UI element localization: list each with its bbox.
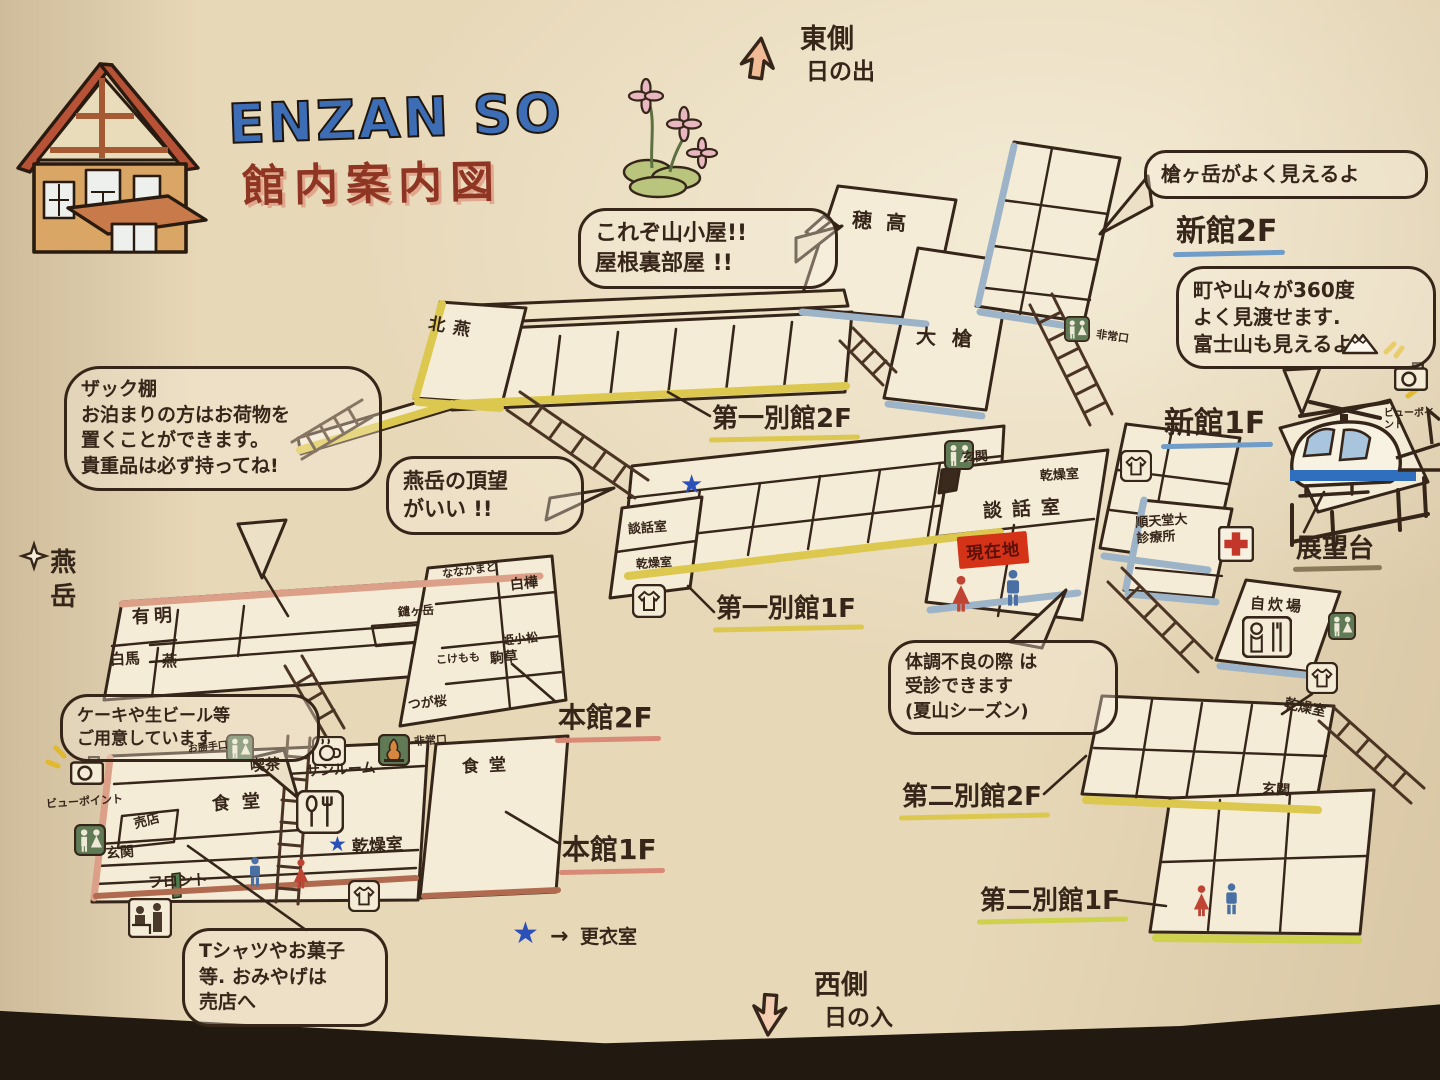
reception-icon [129, 899, 171, 937]
room-label-komakusa: 駒草 [489, 649, 518, 668]
bubble-yarigatake-view: 槍ヶ岳がよく見えるよ [1144, 150, 1428, 199]
compass-west-label: 西側 [814, 970, 868, 1003]
compass-west-sublabel: 日の入 [824, 1004, 893, 1032]
room-label-shirakaba: 白樺 [509, 575, 539, 595]
tshirt-icon [633, 585, 665, 617]
stove-icon [379, 735, 409, 765]
floor-label-daini-2f: 第二別館2F [902, 776, 1042, 813]
fuji-icon [1340, 330, 1380, 356]
changing-room-star-icon: ★ [680, 470, 703, 500]
changing-room-star-icon: ★ [328, 832, 347, 856]
lodge-logo: enzan so [227, 80, 565, 158]
room-label-sunroom: サンルーム [306, 760, 376, 781]
bubble-attic: これぞ山小屋!! 屋根裏部屋 !! [578, 208, 838, 289]
bubble-zakku: ザック棚 お泊まりの方はお荷物を 置くことができます。 貴重品は必ず持ってね! [64, 366, 382, 491]
room-label-oyari: 大槍 [915, 324, 988, 352]
tshirt-icon [349, 881, 379, 911]
room-label-danwashitsu-small: 談話室 [627, 520, 667, 539]
mountain-tsubakuro-label: 燕岳 [44, 548, 76, 616]
room-label-shokudo-left: 食堂 [211, 790, 272, 816]
room-label-shokudo-right: 食堂 [461, 755, 516, 779]
tshirt-icon [1121, 451, 1151, 481]
compass-east-label: 東側 [800, 24, 854, 57]
compass-arrow-east-icon [740, 36, 777, 80]
room-label-genkan-daini: 玄関 [1261, 781, 1290, 800]
current-location-badge: 現在地 [957, 531, 1030, 569]
house-icon [18, 64, 206, 252]
legend-star-icon: ★ [512, 916, 539, 951]
floor-label-daiichi-2f: 第一別館2F [712, 398, 852, 435]
tshirt-icon [1307, 663, 1337, 693]
legend-text: 更衣室 [580, 926, 637, 949]
label-viewpoint-right: ビューポイント [1384, 408, 1440, 432]
room-label-kansoshitsu-honkan: 乾燥室 [351, 835, 403, 858]
flower-icon [624, 79, 717, 197]
compass-east-sublabel: 日の出 [806, 58, 875, 86]
floor-label-daiichi-1f: 第一別館1F [716, 588, 856, 625]
wc-icon [1065, 317, 1089, 341]
room-label-yarigatake: 鑓ヶ岳 [398, 603, 435, 620]
room-label-kansoshitsu-shinkan: 乾燥室 [1040, 467, 1080, 485]
bubble-souvenir: Tシャツやお菓子 等. おみやげは 売店へ [182, 928, 388, 1027]
floor-label-shinkan-1f: 新館1F [1164, 398, 1265, 442]
wc-icon [1329, 613, 1355, 639]
room-label-kansoshitsu-small: 乾燥室 [636, 555, 673, 572]
building-daiichi-1f-annex [610, 497, 702, 598]
building-daini-1f [1150, 790, 1374, 934]
floor-label-shinkan-2f: 新館2F [1176, 206, 1277, 250]
room-label-ariake: 有明 [131, 605, 176, 629]
label-emergency-exit-honkan: 非常口 [414, 733, 448, 749]
compass-arrow-west-icon [752, 994, 787, 1036]
wc-icon [75, 825, 105, 855]
photographed-map: enzan so 館内案内図 東側 日の出 西側 日の入 燕岳 これぞ山小屋!!… [0, 0, 1440, 1080]
room-label-danwashitsu: 談話室 [982, 496, 1070, 524]
room-label-juntendo-clinic: 順天堂大 診療所 [1135, 512, 1189, 547]
room-label-jisuijo: 自炊場 [1249, 594, 1304, 616]
room-label-genkan-center: 玄関 [961, 449, 988, 467]
floor-label-tenbodai: 展望台 [1296, 528, 1374, 565]
redcross-icon [1219, 527, 1253, 561]
cook-icon [1243, 617, 1291, 657]
cutlery-icon [297, 791, 343, 833]
room-label-hotaka: 穂高 [851, 208, 921, 237]
room-label-hakuba: 白馬 [110, 649, 141, 669]
room-label-tsubame: 燕 [162, 652, 177, 670]
room-label-front-desk: フロント [148, 870, 209, 891]
floor-label-honkan-1f: 本館1F [562, 828, 657, 868]
room-label-kissa: 喫茶 [249, 755, 280, 775]
floor-label-honkan-2f: 本館2F [558, 696, 653, 736]
bubble-tsubakuro-view: 燕岳の頂望 がいい !! [386, 456, 584, 535]
legend-arrow: → [550, 924, 568, 951]
map-title: 館内案内図 [242, 156, 503, 214]
room-label-genkan-left: 玄関 [105, 844, 134, 863]
floor-label-daini-1f: 第二別館1F [980, 880, 1120, 917]
bubble-clinic: 体調不良の際 は 受診できます (夏山シーズン) [888, 640, 1118, 735]
bubble-360-view: 町や山々が360度 よく見渡せます. 富士山も見えるよ [1176, 266, 1436, 369]
